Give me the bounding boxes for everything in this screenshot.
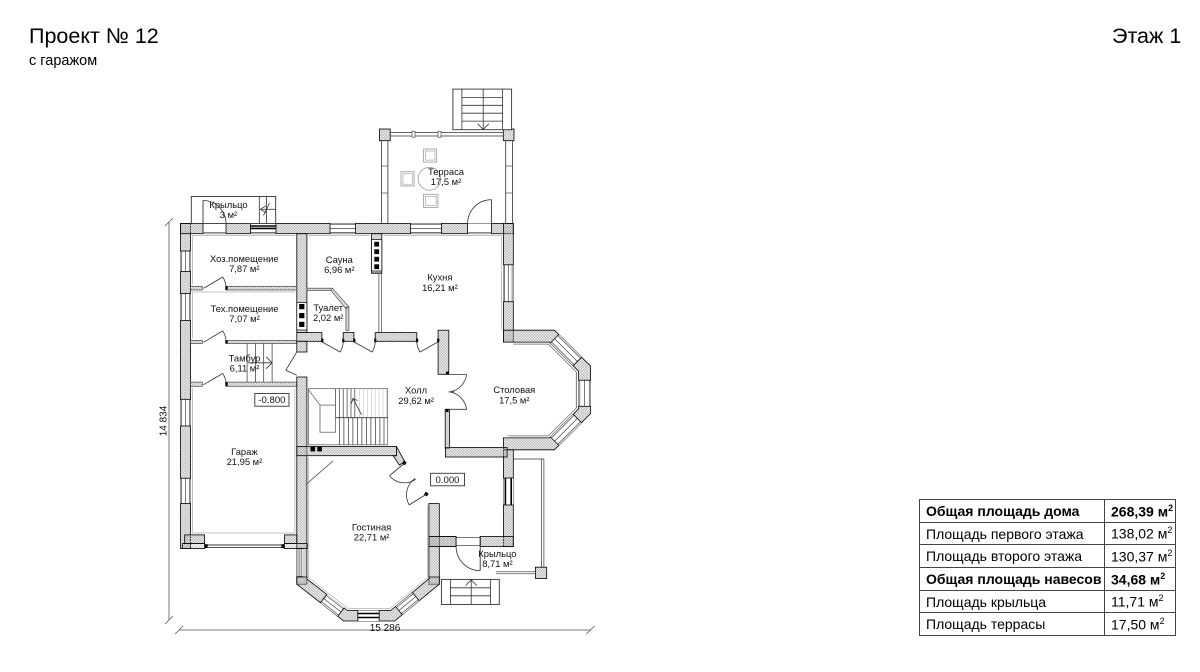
svg-text:6,11 м²: 6,11 м² xyxy=(230,363,260,374)
svg-text:6,96 м²: 6,96 м² xyxy=(324,264,354,275)
svg-text:-0.800: -0.800 xyxy=(258,395,285,406)
svg-text:17,5 м²: 17,5 м² xyxy=(499,394,529,405)
svg-text:21,95 м²: 21,95 м² xyxy=(227,456,263,467)
svg-text:0.000: 0.000 xyxy=(435,475,459,486)
svg-text:7,07 м²: 7,07 м² xyxy=(229,313,259,324)
svg-text:14 834: 14 834 xyxy=(158,405,169,436)
svg-text:15 286: 15 286 xyxy=(370,623,401,634)
svg-text:2,02 м²: 2,02 м² xyxy=(313,312,343,323)
svg-text:22,71 м²: 22,71 м² xyxy=(354,532,390,543)
svg-text:7,87 м²: 7,87 м² xyxy=(229,263,259,274)
svg-text:16,21 м²: 16,21 м² xyxy=(422,282,458,293)
svg-text:3 м²: 3 м² xyxy=(220,209,237,220)
svg-text:8,71 м²: 8,71 м² xyxy=(482,558,512,569)
svg-text:29,62 м²: 29,62 м² xyxy=(398,395,434,406)
svg-text:17,5 м²: 17,5 м² xyxy=(431,176,461,187)
